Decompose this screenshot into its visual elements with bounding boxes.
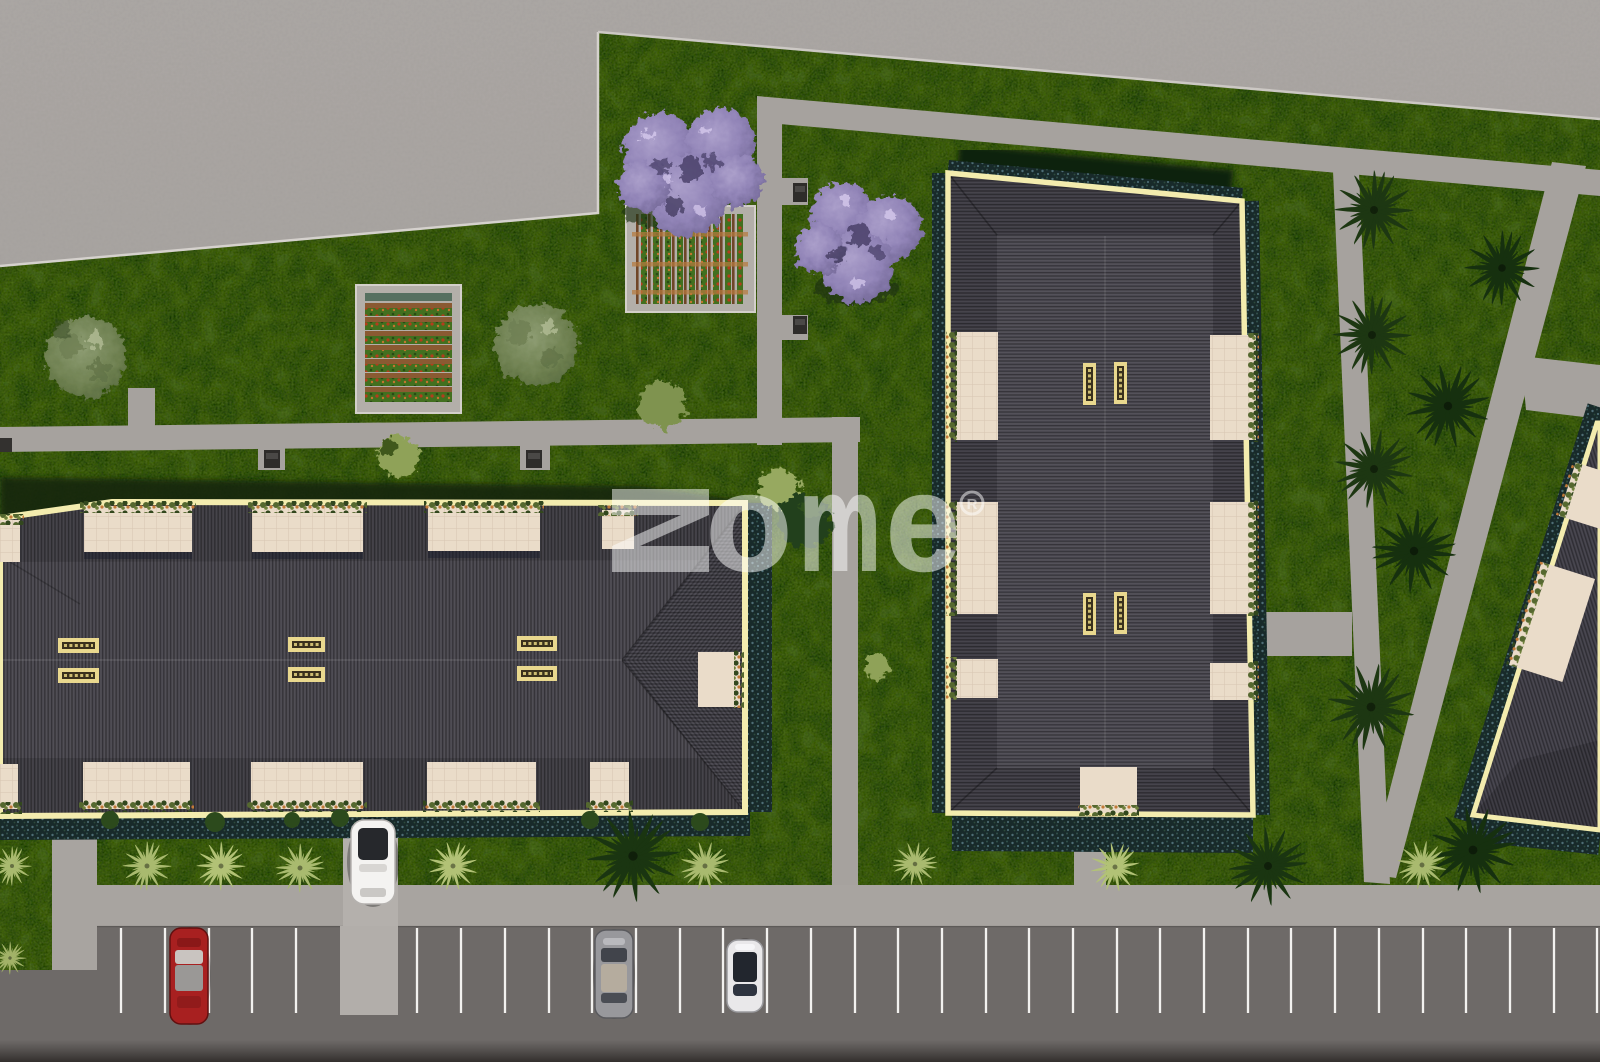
svg-text:e: e xyxy=(886,446,960,600)
svg-text:m: m xyxy=(799,446,881,600)
svg-text:R: R xyxy=(967,496,978,513)
svg-text:o: o xyxy=(706,446,792,600)
